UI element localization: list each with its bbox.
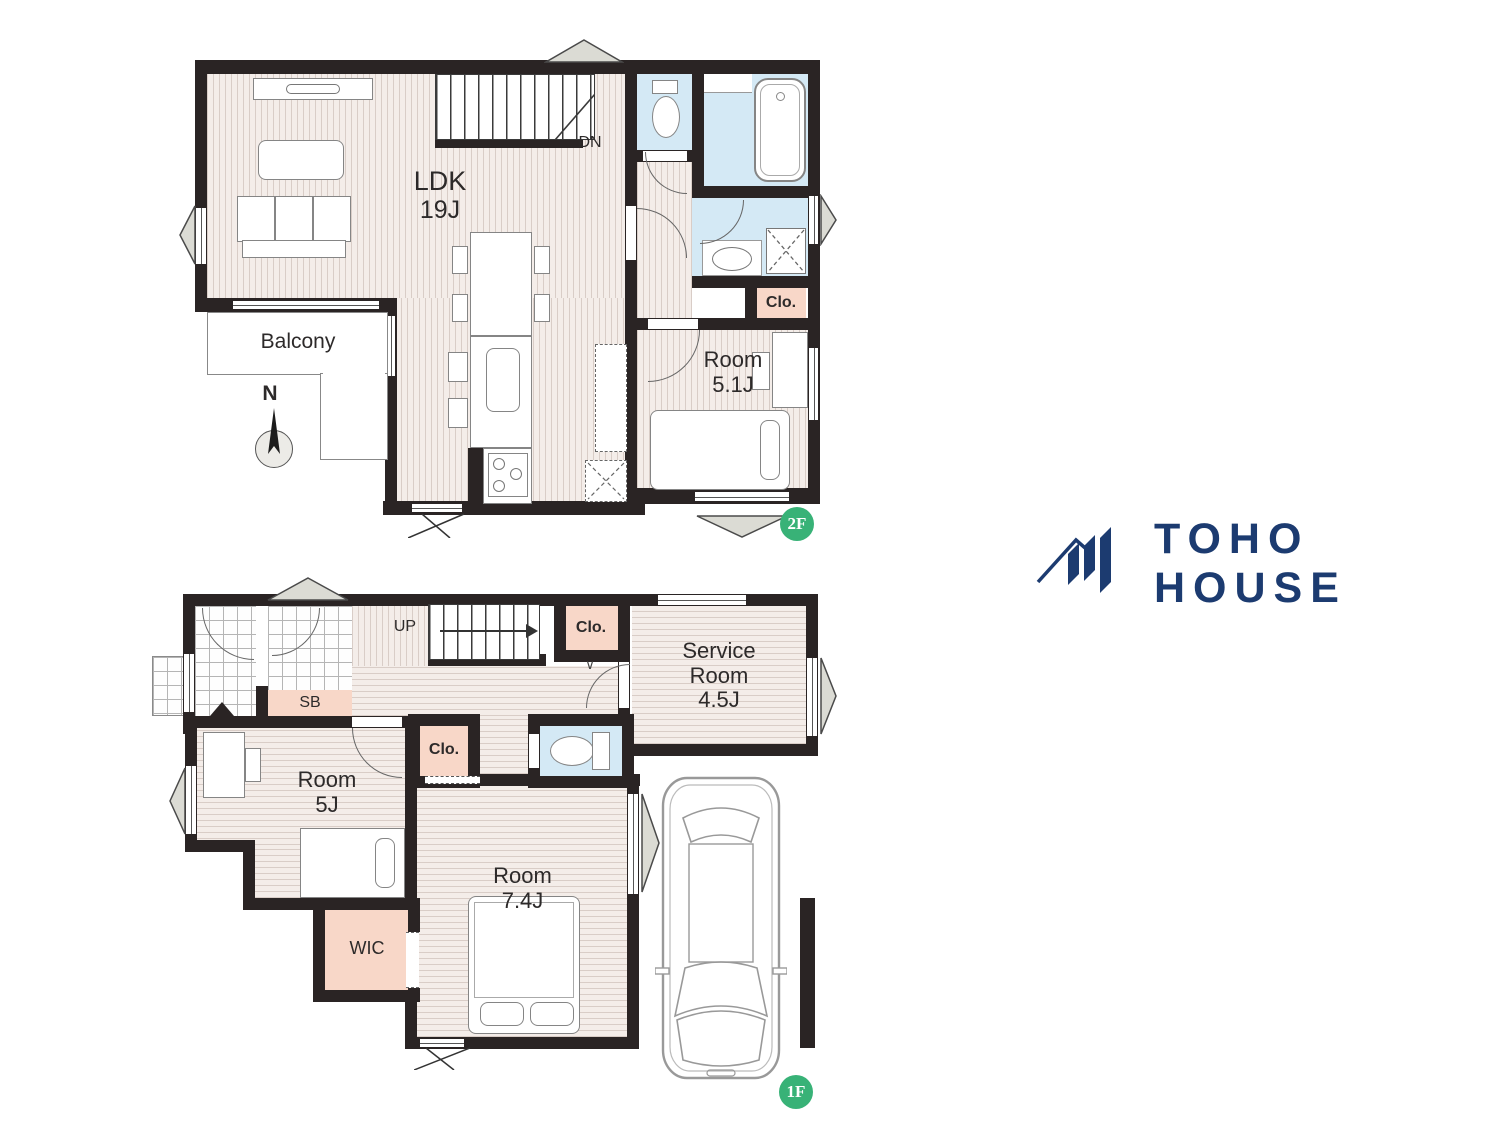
bay-window-mark — [695, 515, 789, 539]
chair — [452, 294, 468, 322]
sofa-base — [242, 240, 346, 258]
bed-single-1f — [300, 828, 405, 898]
balcony-area-side — [320, 373, 388, 460]
wic-label: WIC — [328, 934, 406, 962]
pillow — [530, 1002, 574, 1026]
window — [658, 595, 746, 605]
toilet-tank — [652, 80, 678, 94]
shoe-box-floor — [268, 690, 352, 716]
gable-mark — [544, 38, 624, 64]
dining-table — [470, 232, 532, 336]
desk-1f — [203, 732, 245, 798]
room-label-74: Room 7.4J — [455, 858, 590, 920]
bay-window-mark — [178, 204, 196, 266]
brand-logo-text: TOHO HOUSE — [1154, 536, 1506, 592]
room-label-ldk: LDK 19J — [380, 160, 500, 230]
car-icon — [655, 772, 787, 1084]
parking-wall — [800, 898, 815, 1048]
wic-floor — [325, 910, 408, 990]
door-opening — [529, 734, 539, 768]
gable-mark — [266, 576, 350, 602]
stool — [448, 352, 468, 382]
window — [412, 504, 462, 512]
sofa-divider — [274, 196, 276, 242]
balcony-seam — [323, 370, 385, 376]
sofa — [237, 196, 351, 242]
closet-label-2f: Clo. — [753, 289, 809, 317]
hall-floor-strip — [352, 606, 428, 716]
bay-window-mark — [820, 656, 838, 736]
genkan-tiles — [268, 606, 352, 690]
refrigerator — [595, 344, 627, 452]
door-v-mark: ∨ — [578, 656, 602, 674]
window — [233, 301, 379, 309]
bay-window-mark — [641, 792, 661, 894]
bed-double — [468, 896, 580, 1034]
chair — [452, 246, 468, 274]
stairs-1f — [428, 604, 540, 660]
burner — [493, 458, 505, 470]
window — [628, 794, 638, 894]
room5-floor — [197, 728, 405, 845]
floor-plan-page: DN — [0, 0, 1512, 1134]
window — [196, 208, 206, 264]
sink-oval — [712, 247, 752, 271]
window — [695, 492, 789, 501]
closet-mid-frame — [408, 714, 480, 788]
room-label-service: Service Room 4.5J — [648, 628, 790, 724]
window — [420, 1039, 464, 1047]
burner — [493, 480, 505, 492]
compass-north-label: N — [250, 382, 290, 406]
closet-hall-label: Clo. — [562, 612, 620, 644]
threshold-mark — [210, 702, 234, 716]
stair-landing — [540, 606, 554, 654]
chair — [534, 294, 550, 322]
toho-house-logo-icon — [1036, 524, 1130, 608]
floor-badge-2f: 2F — [780, 507, 814, 541]
toilet-1f-floor — [540, 726, 622, 776]
pillow — [480, 1002, 524, 1026]
toilet-bowl — [550, 736, 594, 766]
room-label-balcony: Balcony — [228, 328, 368, 356]
low-table — [258, 140, 344, 180]
bed-mattress — [474, 902, 574, 998]
window — [809, 348, 818, 420]
corridor-floor — [480, 716, 528, 774]
toilet-bowl — [652, 96, 680, 138]
door-opening — [619, 662, 629, 708]
stairs-arrow-head — [526, 624, 538, 638]
bay-window-mark — [168, 766, 186, 836]
sofa-divider — [312, 196, 314, 242]
door-opening — [626, 206, 636, 260]
shower-x-mark — [766, 228, 806, 274]
window — [186, 766, 196, 834]
pantry-x — [585, 460, 627, 502]
floor-badge-1f: 1F — [779, 1075, 813, 1109]
brand-logo: TOHO HOUSE — [1036, 520, 1506, 612]
desk-chair — [245, 748, 261, 782]
closet-hall-floor — [566, 606, 618, 650]
drain — [776, 92, 785, 101]
door-arc — [352, 728, 402, 778]
bay-window-mark — [820, 194, 838, 246]
porch-tiles — [152, 656, 195, 716]
tv — [286, 84, 340, 94]
entry-tiles — [195, 606, 256, 716]
door-opening — [352, 717, 402, 727]
stairs-arrow-line — [440, 630, 528, 632]
pillow — [375, 838, 395, 888]
bath-counter — [702, 74, 752, 93]
burner — [510, 468, 522, 480]
entry-door-opening — [184, 654, 194, 712]
service-room-floor — [632, 606, 806, 744]
compass-needle-icon — [266, 408, 282, 458]
shoe-box-label: SB — [270, 691, 350, 715]
window — [809, 196, 818, 244]
room5-floor-lower — [255, 845, 405, 898]
stairs-down-label: DN — [568, 132, 612, 154]
second-floor-plan: DN — [0, 0, 900, 560]
pillow — [760, 420, 780, 480]
closet-mid-label: Clo. — [416, 734, 472, 766]
kitchen-sink — [486, 348, 520, 412]
wic-sliding-door — [406, 932, 419, 988]
room-label-5: Room 5J — [262, 762, 392, 824]
door-opening — [648, 319, 698, 329]
toilet-tank — [592, 732, 610, 770]
door-arc — [202, 608, 254, 660]
room74-floor — [417, 786, 627, 1037]
hall-floor — [352, 666, 620, 716]
casement-mark — [414, 1046, 470, 1070]
stairs-up-label: UP — [384, 616, 426, 638]
casement-mark — [408, 512, 464, 538]
closet-mid-floor — [420, 726, 468, 776]
chair — [534, 246, 550, 274]
window — [807, 658, 817, 736]
door-arc — [586, 664, 630, 708]
sliding-opening — [425, 776, 480, 784]
stairs-diagonal — [435, 74, 595, 140]
room-label-51: Room 5.1J — [668, 342, 798, 404]
door-arc — [272, 608, 320, 656]
stool — [448, 398, 468, 428]
